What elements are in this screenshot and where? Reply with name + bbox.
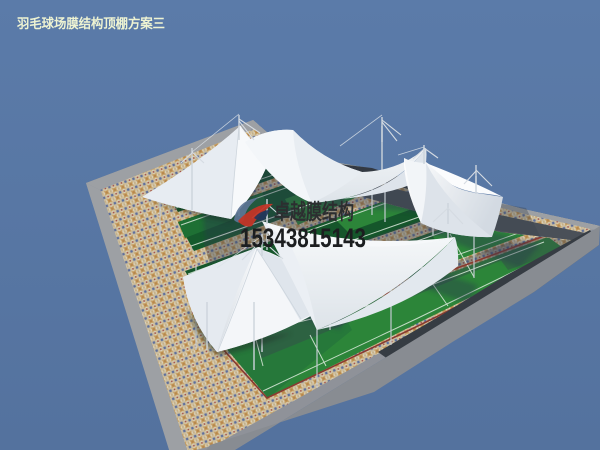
svg-text:羽毛球场膜结构顶棚方案三: 羽毛球场膜结构顶棚方案三 (17, 16, 165, 31)
svg-text:15343815143: 15343815143 (240, 223, 366, 253)
svg-text:卓越膜结构: 卓越膜结构 (274, 200, 354, 224)
